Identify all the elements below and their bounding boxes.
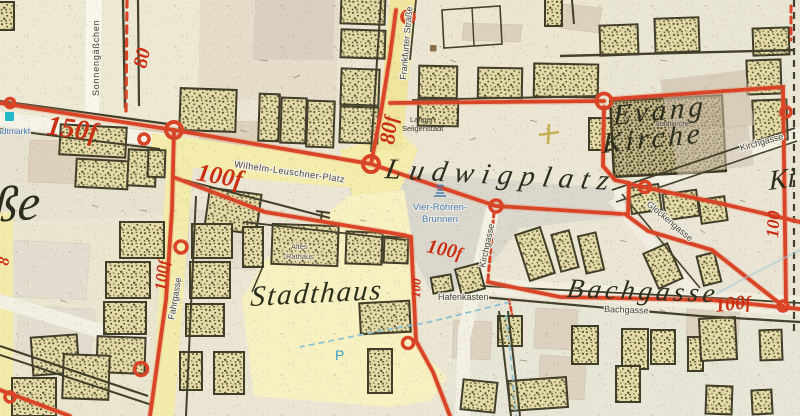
- svg-text:Rathaus: Rathaus: [286, 252, 314, 261]
- svg-text:ße: ße: [0, 174, 42, 234]
- svg-text:100: 100: [408, 278, 424, 299]
- svg-text:Bachgasse: Bachgasse: [604, 304, 649, 316]
- svg-text:Hafenkasten: Hafenkasten: [438, 292, 489, 302]
- svg-text:Vier-Röhren-: Vier-Röhren-: [413, 202, 467, 213]
- svg-text:Bachgasse: Bachgasse: [565, 273, 722, 308]
- svg-text:Stadtmarkt: Stadtmarkt: [0, 126, 31, 136]
- svg-text:Ki: Ki: [768, 162, 795, 197]
- svg-text:Langen: Langen: [410, 115, 435, 124]
- svg-text:Altes: Altes: [291, 242, 308, 251]
- svg-text:P: P: [335, 347, 344, 363]
- svg-text:Brunnen: Brunnen: [422, 214, 458, 225]
- svg-text:Stadtkirche: Stadtkirche: [655, 121, 690, 128]
- svg-text:100: 100: [762, 210, 784, 238]
- svg-text:Seligenstadt: Seligenstadt: [402, 124, 444, 133]
- svg-text:Sonnengäßchen: Sonnengäßchen: [91, 20, 101, 96]
